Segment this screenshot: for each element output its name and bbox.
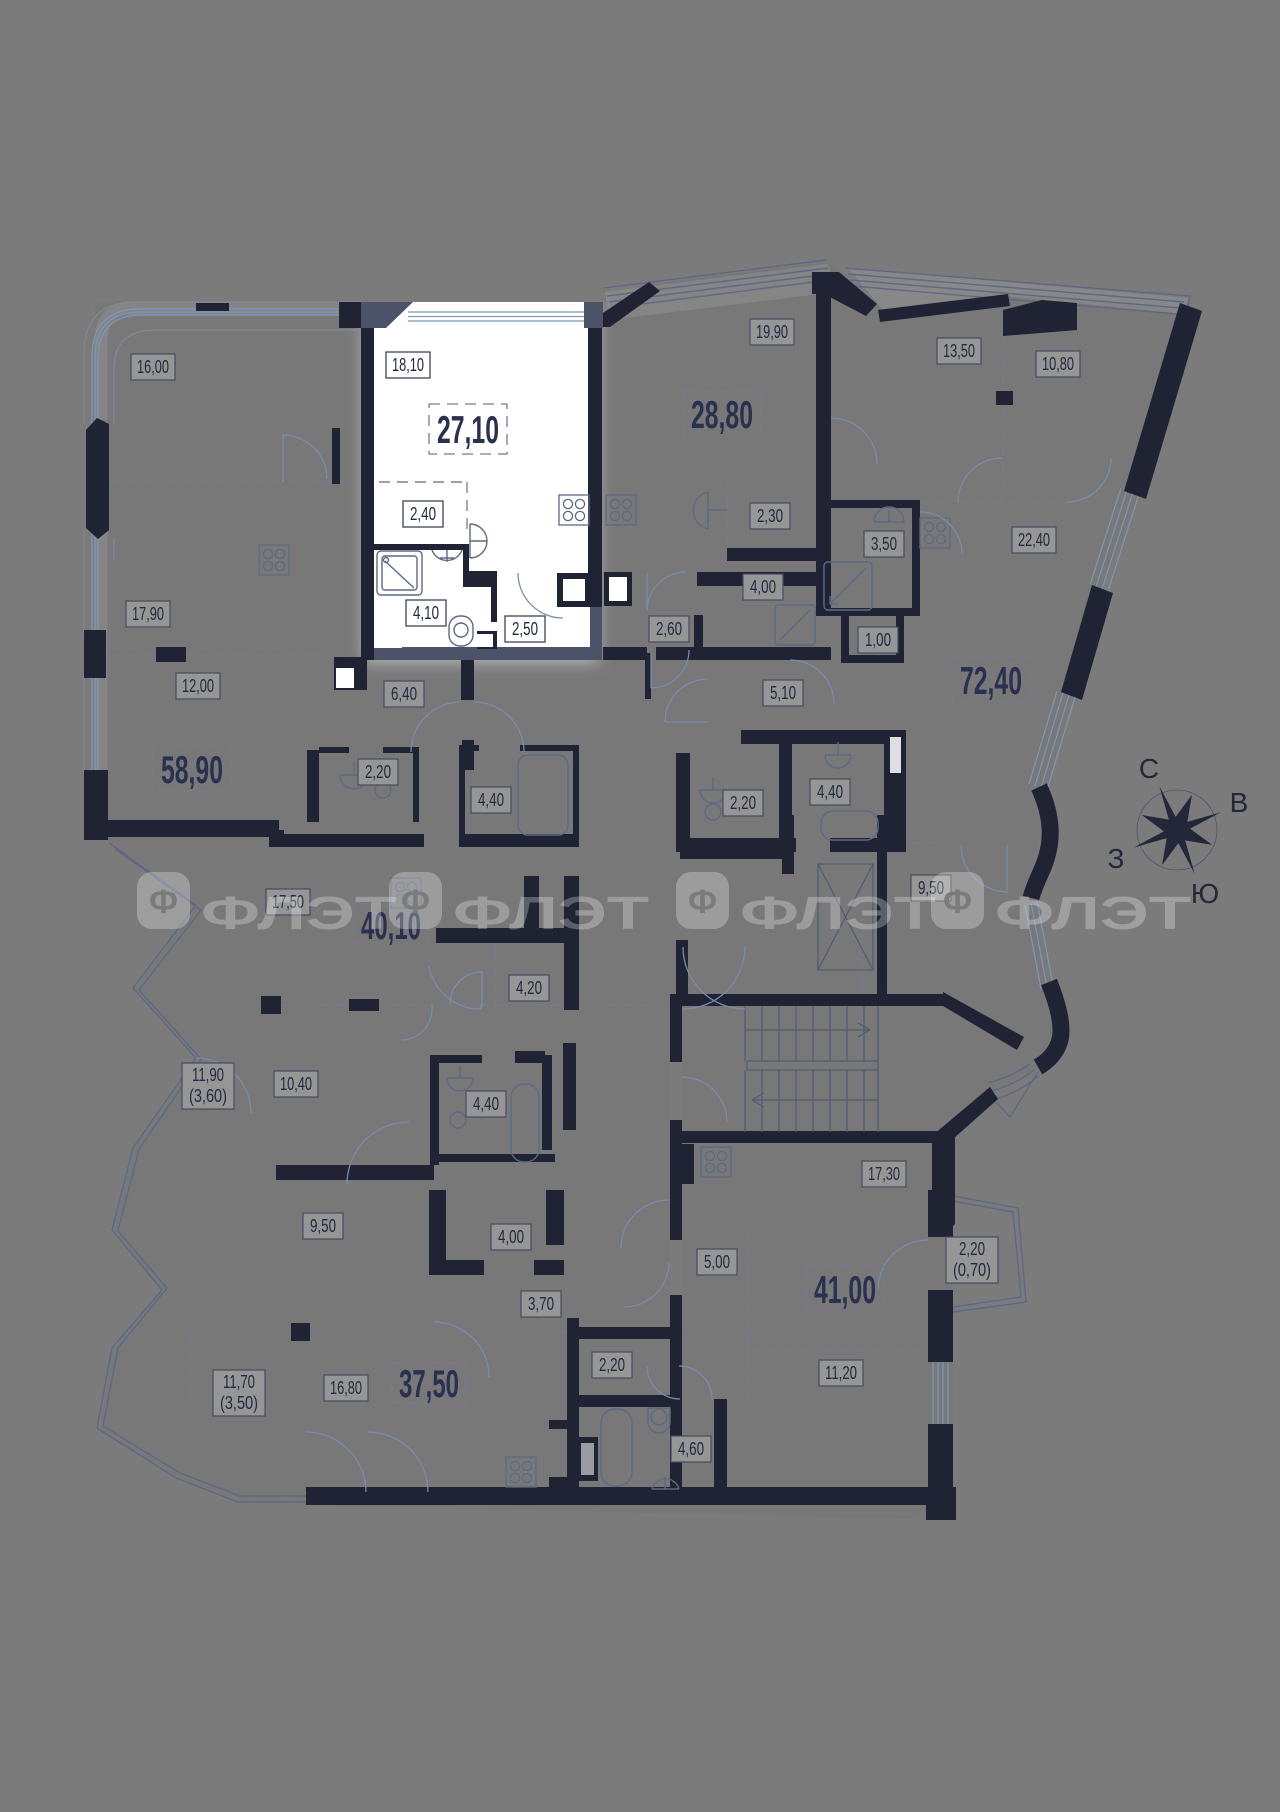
svg-text:10,80: 10,80 (1042, 354, 1074, 374)
svg-text:72,40: 72,40 (960, 660, 1022, 703)
svg-text:17,30: 17,30 (868, 1164, 900, 1184)
svg-text:16,00: 16,00 (137, 357, 169, 377)
svg-text:12,00: 12,00 (182, 676, 214, 696)
svg-text:4,00: 4,00 (498, 1227, 524, 1247)
svg-text:2,30: 2,30 (757, 506, 783, 526)
svg-text:4,60: 4,60 (678, 1439, 704, 1459)
svg-text:3,50: 3,50 (871, 534, 897, 554)
svg-text:16,80: 16,80 (330, 1378, 362, 1398)
svg-text:С: С (1139, 753, 1159, 784)
svg-text:58,90: 58,90 (161, 749, 223, 792)
svg-text:11,20: 11,20 (825, 1363, 857, 1383)
svg-text:(3,50): (3,50) (220, 1393, 258, 1413)
svg-text:2,20: 2,20 (730, 793, 756, 813)
svg-text:Ю: Ю (1191, 878, 1219, 909)
svg-text:37,50: 37,50 (399, 1363, 459, 1406)
svg-text:3,70: 3,70 (528, 1294, 554, 1314)
svg-text:27,10: 27,10 (437, 409, 499, 452)
svg-text:(0,70): (0,70) (953, 1260, 991, 1280)
svg-text:9,50: 9,50 (310, 1216, 336, 1236)
svg-text:19,90: 19,90 (756, 322, 788, 342)
svg-text:4,40: 4,40 (473, 1094, 499, 1114)
svg-text:В: В (1230, 787, 1249, 818)
svg-text:17,90: 17,90 (132, 604, 164, 624)
svg-text:22,40: 22,40 (1018, 530, 1050, 550)
svg-text:2,20: 2,20 (599, 1355, 625, 1375)
svg-text:З: З (1108, 843, 1125, 874)
svg-text:6,40: 6,40 (391, 684, 417, 704)
svg-text:4,10: 4,10 (413, 603, 439, 623)
svg-text:(3,60): (3,60) (189, 1086, 227, 1106)
svg-text:4,00: 4,00 (750, 577, 776, 597)
svg-text:4,20: 4,20 (516, 978, 542, 998)
svg-text:2,60: 2,60 (656, 619, 682, 639)
svg-text:11,90: 11,90 (192, 1065, 224, 1085)
svg-text:4,40: 4,40 (817, 782, 843, 802)
svg-text:5,00: 5,00 (704, 1252, 730, 1272)
svg-text:11,70: 11,70 (223, 1372, 255, 1392)
svg-text:41,00: 41,00 (814, 1269, 876, 1312)
svg-text:2,50: 2,50 (512, 619, 538, 639)
svg-text:2,20: 2,20 (365, 762, 391, 782)
svg-text:2,40: 2,40 (410, 504, 436, 524)
svg-text:10,40: 10,40 (280, 1074, 312, 1094)
svg-text:1,00: 1,00 (865, 630, 891, 650)
svg-text:2,20: 2,20 (959, 1239, 985, 1259)
svg-text:28,80: 28,80 (691, 394, 753, 437)
svg-text:13,50: 13,50 (943, 341, 975, 361)
svg-text:4,40: 4,40 (478, 790, 504, 810)
svg-text:18,10: 18,10 (392, 355, 424, 375)
svg-text:5,10: 5,10 (770, 683, 796, 703)
